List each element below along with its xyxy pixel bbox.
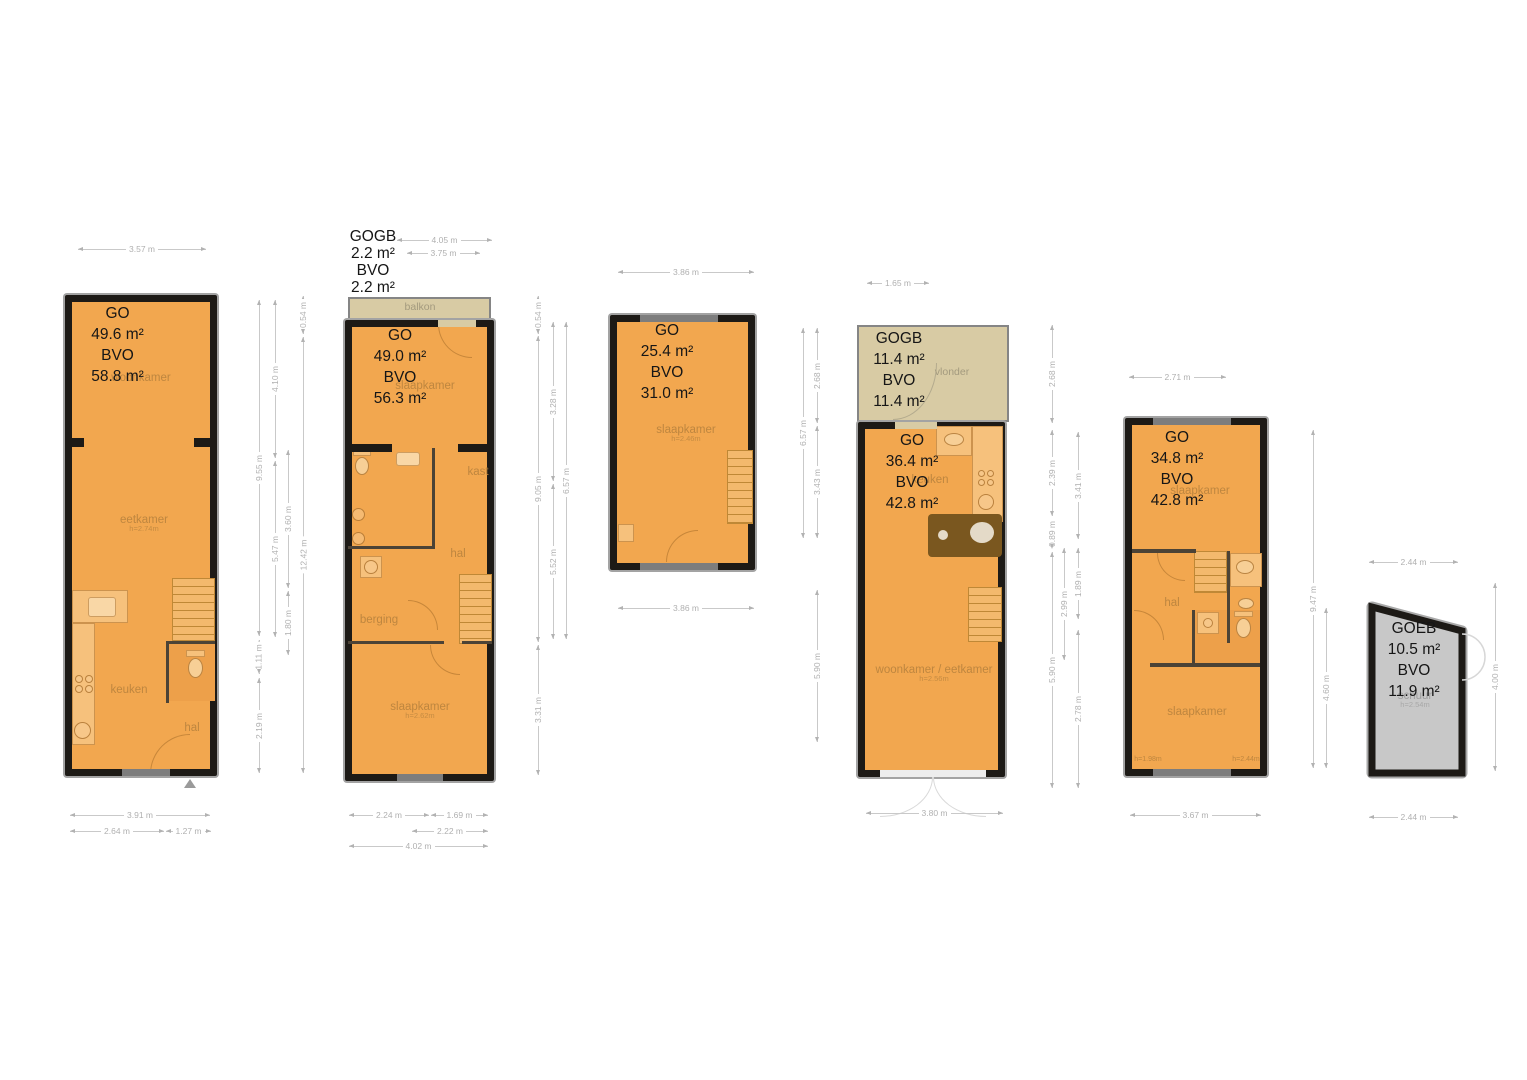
floorplan-sheet: GO 49.6 m² BVO 58.8 m² woonkamer eetkame…: [0, 0, 1527, 1080]
interior-wall: [1192, 610, 1195, 667]
dim-right: 5.90 m: [812, 590, 822, 742]
dim-right: 12.42 m: [298, 337, 308, 773]
room-label-vlonder: vlonder: [935, 366, 969, 378]
room-label-hal: hal: [184, 722, 199, 734]
room-label-slaapkamer: slaapkamerh=2.46m: [656, 424, 715, 443]
stove-burner-icon: [75, 675, 83, 683]
toilet-icon: [1236, 618, 1251, 638]
stairs-icon: [727, 450, 753, 524]
interior-wall: [432, 448, 435, 548]
bvo-label: BVO: [75, 345, 160, 366]
dim-right: 0.54 m: [298, 296, 308, 334]
stove-burner-icon: [85, 675, 93, 683]
interior-wall: [1132, 549, 1196, 553]
go-label: GO: [622, 320, 712, 341]
bvo-value: 42.8 m²: [1133, 490, 1221, 511]
room-label-eetkamer: eetkamerh=2.74m: [120, 514, 168, 533]
dim-top: 3.75 m: [407, 248, 480, 258]
room-label-hal: hal: [1164, 597, 1179, 609]
sink-icon: [1238, 598, 1254, 609]
floorplan-unit-6: GOEB 10.5 m² BVO 11.9 m² schuurh=2.54m 2…: [0, 0, 1527, 1080]
plan4-annex-stats: GOGB 11.4 m² BVO 11.4 m²: [860, 328, 938, 412]
bvo-value: 42.8 m²: [868, 493, 956, 514]
room-label-hal: hal: [450, 548, 465, 560]
basin-icon: [1236, 560, 1254, 574]
dim-right: 6.57 m: [798, 328, 808, 538]
interior-wall: [348, 641, 444, 644]
dim-top: 3.86 m: [618, 267, 754, 277]
dim-top: 1.65 m: [867, 278, 929, 288]
toilet-tank-icon: [186, 650, 205, 657]
dim-right: 2.68 m: [1047, 325, 1057, 423]
dim-right: 6.57 m: [561, 322, 571, 639]
washer-drum-icon: [364, 560, 378, 574]
dim-top: 4.05 m: [397, 235, 492, 245]
dim-right: 2.78 m: [1073, 630, 1083, 788]
bvo-value: 2.2 m²: [338, 279, 408, 296]
dim-bottom: 1.27 m: [166, 826, 211, 836]
dim-bottom: 4.02 m: [349, 841, 488, 851]
dim-bottom: 1.69 m: [431, 810, 488, 820]
go-label: GO: [1133, 427, 1221, 448]
go-value: 49.0 m²: [355, 346, 445, 367]
dim-right: 9.47 m: [1308, 430, 1318, 768]
dim-right: 5.52 m: [548, 484, 558, 639]
dim-right: 3.31 m: [533, 645, 543, 775]
plan1-window: [122, 769, 170, 776]
dim-right: 1.80 m: [283, 591, 293, 655]
interior-wall: [1150, 663, 1260, 667]
cabinet-icon: [618, 524, 634, 542]
bvo-label: BVO: [338, 262, 408, 279]
ceiling-height-label: h=1.98m: [1134, 756, 1161, 763]
entrance-marker-icon: [184, 779, 196, 788]
bvo-label: BVO: [355, 367, 445, 388]
room-label-woonkamer-eetkamer: woonkamer / eetkamerh=2.56m: [876, 664, 993, 683]
dim-right: 3.28 m: [548, 322, 558, 481]
dim-right: 3.41 m: [1073, 432, 1083, 539]
room-label-slaapkamer: slaapkamerh=2.62m: [390, 701, 449, 720]
plan2-annex-stats: GOGB 2.2 m² BVO 2.2 m²: [338, 228, 408, 296]
bvo-value: 11.9 m²: [1372, 681, 1456, 702]
dim-bottom: 2.44 m: [1369, 812, 1458, 822]
dim-right: 9.05 m: [533, 336, 543, 642]
dim-bottom: 2.64 m: [70, 826, 164, 836]
sink-icon: [396, 452, 420, 466]
toilet-icon: [188, 658, 203, 678]
room-label-slaapkamer: slaapkamer: [1167, 706, 1226, 718]
dim-right: 4.10 m: [270, 300, 280, 458]
shower-drain-icon: [1203, 618, 1213, 628]
goeb-label: GOEB: [1372, 618, 1456, 639]
plan2-window: [397, 774, 443, 781]
plan5-area-stats: GO 34.8 m² BVO 42.8 m²: [1133, 427, 1221, 511]
sink-icon: [88, 597, 116, 617]
interior-wall: [1227, 551, 1230, 643]
shed-area-stats: GOEB 10.5 m² BVO 11.9 m²: [1372, 618, 1456, 702]
gogb-label: GOGB: [860, 328, 938, 349]
dim-right: 5.47 m: [270, 461, 280, 637]
go-value: 36.4 m²: [868, 451, 956, 472]
bvo-value: 56.3 m²: [355, 388, 445, 409]
dim-bottom: 3.86 m: [618, 603, 754, 613]
plan2-wall-stub-left: [352, 444, 392, 452]
plate-icon: [938, 530, 948, 540]
stairs-icon: [172, 578, 215, 641]
interior-wall: [462, 641, 492, 644]
gogb-value: 2.2 m²: [338, 245, 408, 262]
plan1-wall-stub-right: [194, 438, 210, 447]
plan1-area-stats: GO 49.6 m² BVO 58.8 m²: [75, 303, 160, 387]
dim-right: 1.89 m: [1073, 548, 1083, 619]
go-label: GO: [355, 325, 445, 346]
stove-burner-icon: [978, 479, 985, 486]
dim-right: 3.60 m: [283, 450, 293, 588]
room-label-berging: berging: [360, 614, 398, 626]
plate-icon: [970, 522, 994, 543]
room-label-keuken: keuken: [110, 684, 147, 696]
plan5-window-top: [1153, 418, 1231, 425]
go-value: 34.8 m²: [1133, 448, 1221, 469]
french-door-opening: [880, 770, 986, 777]
goeb-value: 10.5 m²: [1372, 639, 1456, 660]
dim-bottom: 2.24 m: [349, 810, 429, 820]
dim-top: 2.71 m: [1129, 372, 1226, 382]
deck-door-gap: [895, 422, 937, 429]
stairs-icon: [459, 574, 492, 644]
toilet-tank-icon: [1234, 611, 1253, 617]
dim-bottom: 2.22 m: [412, 826, 488, 836]
dim-right: 1.11 m: [254, 640, 264, 674]
dim-right: 4.00 m: [1490, 583, 1500, 771]
go-label: GO: [75, 303, 160, 324]
dim-right: 5.90 m: [1047, 552, 1057, 788]
stove-burner-icon: [987, 470, 994, 477]
sink-round-icon: [978, 494, 994, 510]
dim-right: 0.54 m: [533, 296, 543, 334]
room-label-kast: kast: [467, 466, 488, 478]
stairs-icon: [1194, 551, 1227, 593]
plan2-wall-stub-right: [458, 444, 492, 452]
interior-wall: [166, 641, 215, 644]
stairs-icon: [968, 587, 1002, 642]
dim-bottom: 3.80 m: [866, 808, 1003, 818]
bvo-label: BVO: [1133, 469, 1221, 490]
dim-right: 9.55 m: [254, 300, 264, 636]
ceiling-height-label: h=2.44m: [1232, 756, 1259, 763]
dim-right: 2.19 m: [254, 678, 264, 773]
shower-icon: [352, 532, 365, 545]
plan5-window-bottom: [1153, 769, 1231, 776]
toilet-icon: [355, 457, 369, 475]
go-value: 25.4 m²: [622, 341, 712, 362]
bvo-label: BVO: [860, 370, 938, 391]
bvo-label: BVO: [1372, 660, 1456, 681]
washer-icon: [74, 722, 91, 739]
dim-right: 4.60 m: [1321, 608, 1331, 768]
dim-right: 2.99 m: [1059, 548, 1069, 660]
gogb-value: 11.4 m²: [860, 349, 938, 370]
go-value: 49.6 m²: [75, 324, 160, 345]
stove-burner-icon: [85, 685, 93, 693]
bvo-value: 58.8 m²: [75, 366, 160, 387]
plan4-area-stats: GO 36.4 m² BVO 42.8 m²: [868, 430, 956, 514]
room-label-balkon: balkon: [405, 301, 436, 313]
bvo-label: BVO: [622, 362, 712, 383]
interior-wall: [166, 641, 169, 703]
dim-top: 2.44 m: [1369, 557, 1458, 567]
plan2-area-stats: GO 49.0 m² BVO 56.3 m²: [355, 325, 445, 409]
dim-right: 2.39 m: [1047, 430, 1057, 516]
dim-right: 0.89 m: [1047, 519, 1057, 549]
plan1-wall-stub-left: [72, 438, 84, 447]
interior-wall: [348, 546, 435, 549]
stove-burner-icon: [75, 685, 83, 693]
bvo-label: BVO: [868, 472, 956, 493]
gogb-label: GOGB: [338, 228, 408, 245]
go-label: GO: [868, 430, 956, 451]
dim-right: 3.43 m: [812, 426, 822, 538]
dim-top: 3.57 m: [78, 244, 206, 254]
dim-right: 2.68 m: [812, 328, 822, 423]
bvo-value: 11.4 m²: [860, 391, 938, 412]
stove-burner-icon: [978, 470, 985, 477]
plan3-window-bottom: [640, 563, 718, 570]
plan3-area-stats: GO 25.4 m² BVO 31.0 m²: [622, 320, 712, 404]
stove-burner-icon: [987, 479, 994, 486]
bvo-value: 31.0 m²: [622, 383, 712, 404]
dim-bottom: 3.91 m: [70, 810, 210, 820]
dim-bottom: 3.67 m: [1130, 810, 1261, 820]
shower-icon: [352, 508, 365, 521]
